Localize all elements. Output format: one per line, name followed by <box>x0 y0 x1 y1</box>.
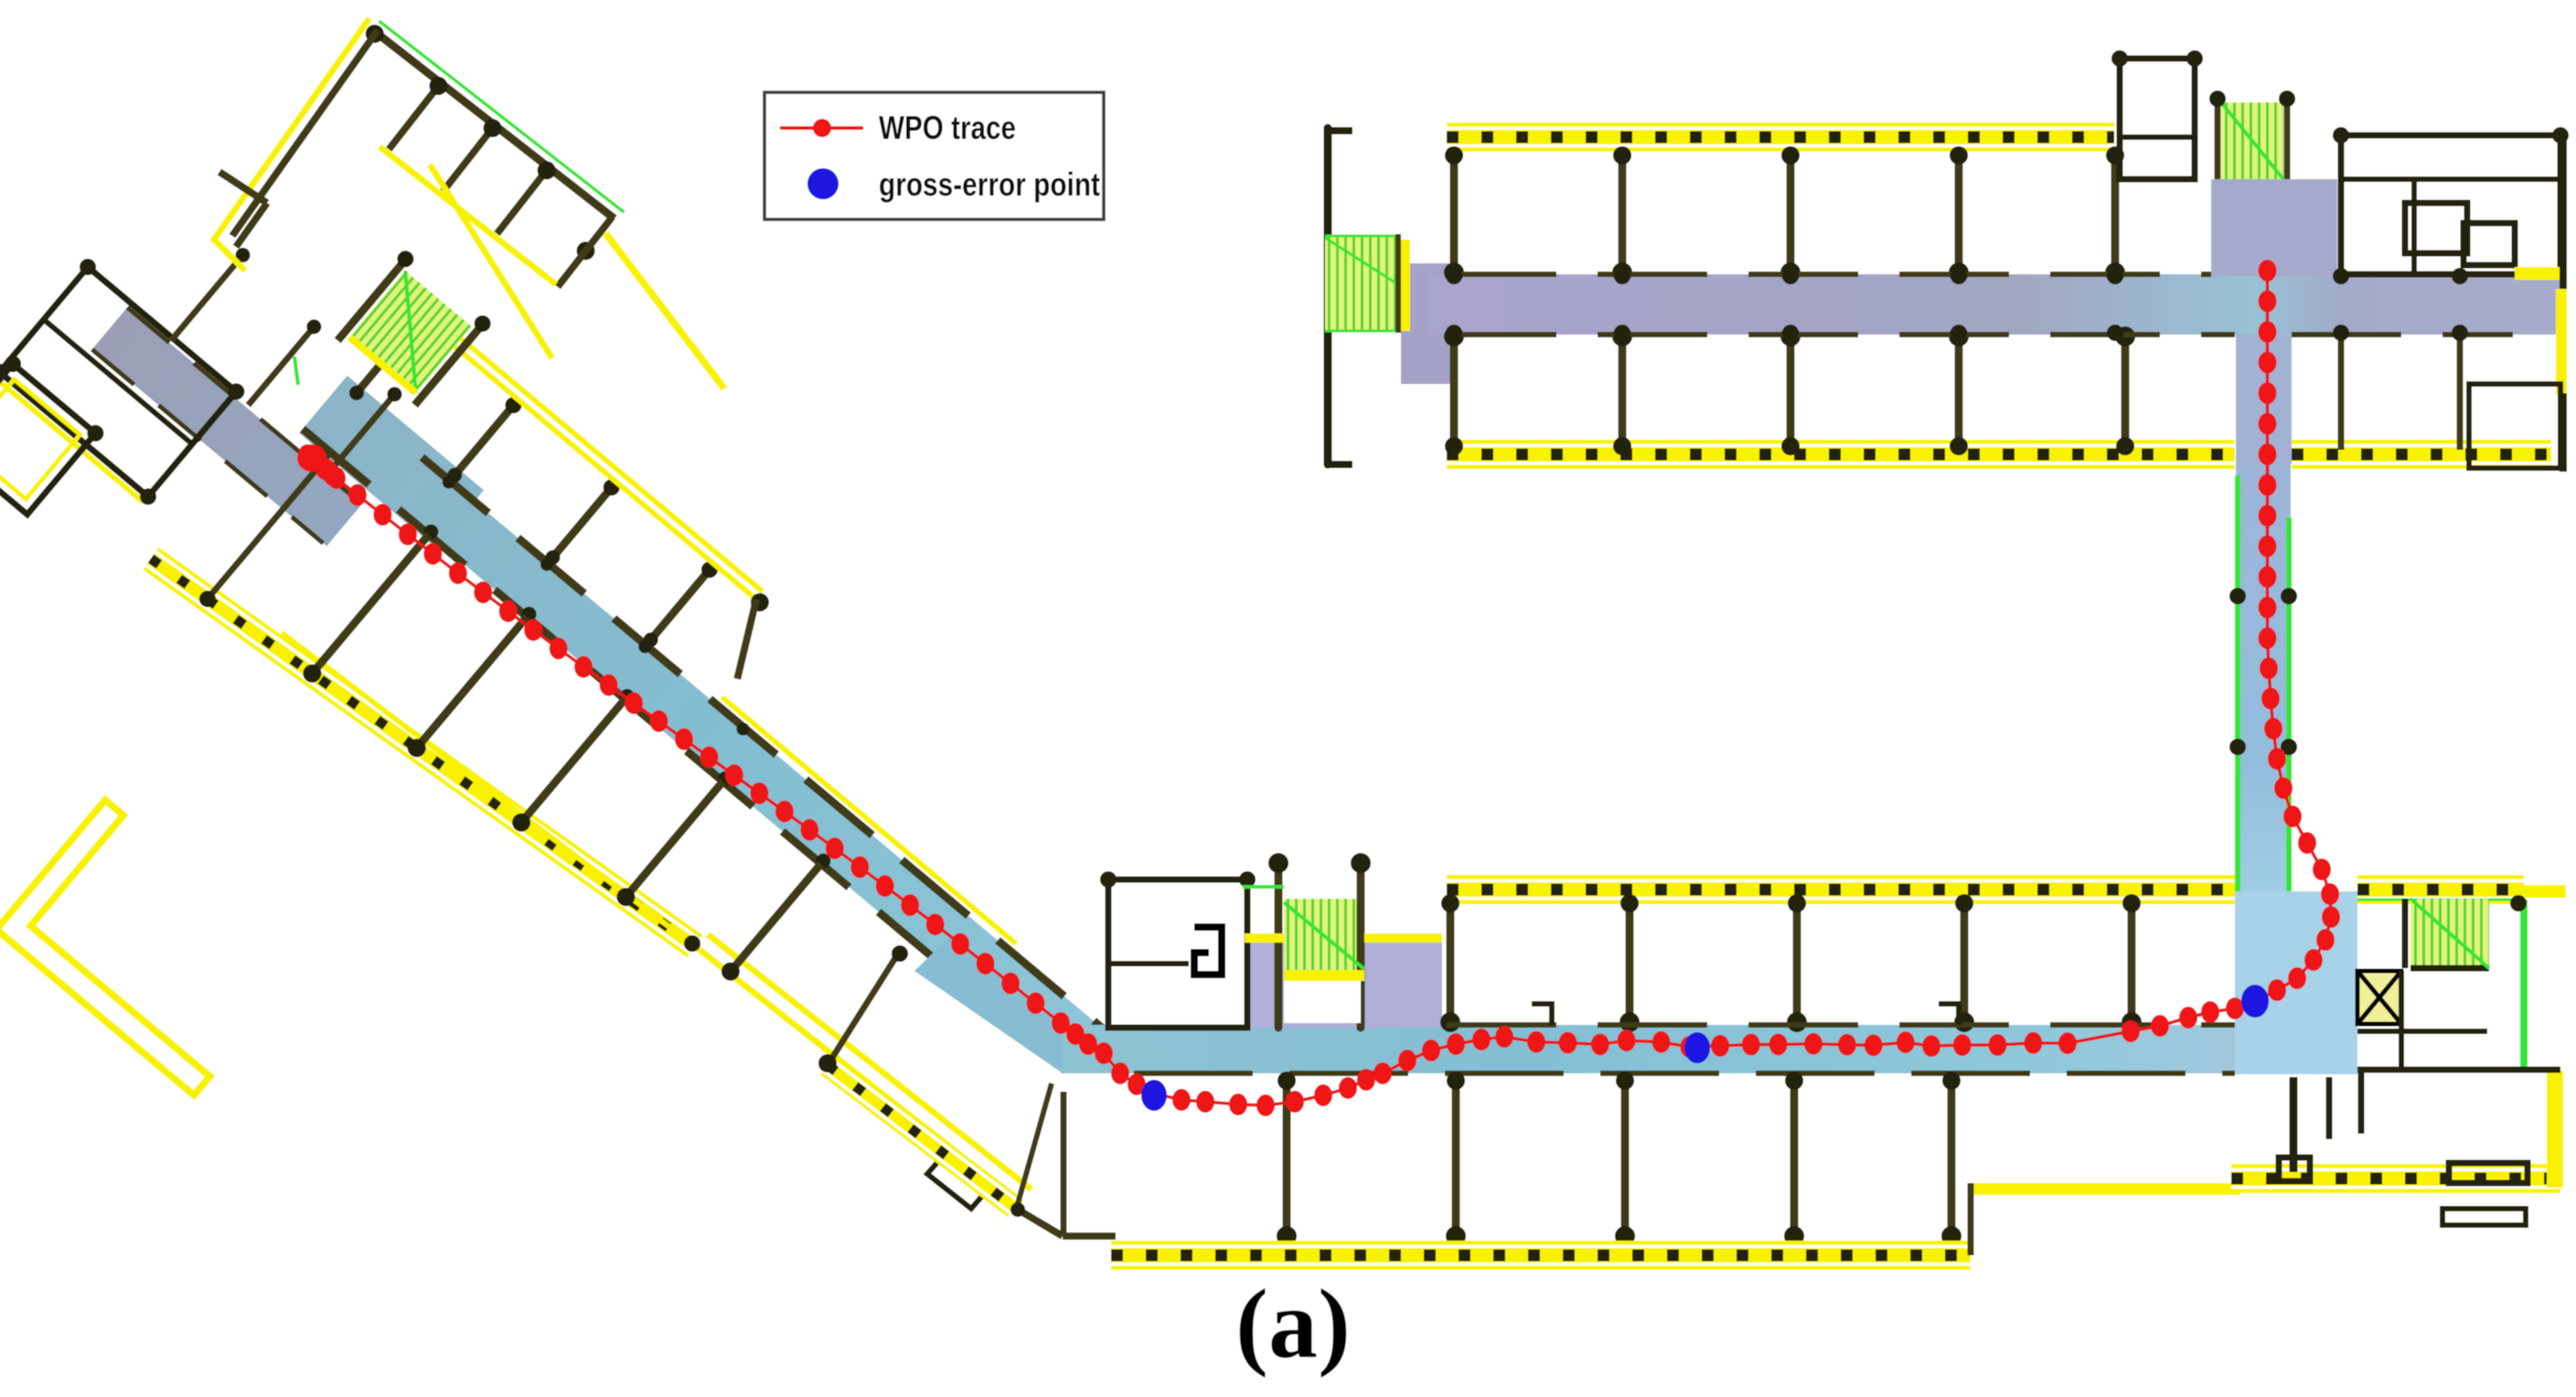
svg-text:gross-error point: gross-error point <box>879 165 1100 203</box>
svg-text:(a): (a) <box>1235 1270 1351 1379</box>
svg-text:WPO trace: WPO trace <box>879 109 1016 146</box>
